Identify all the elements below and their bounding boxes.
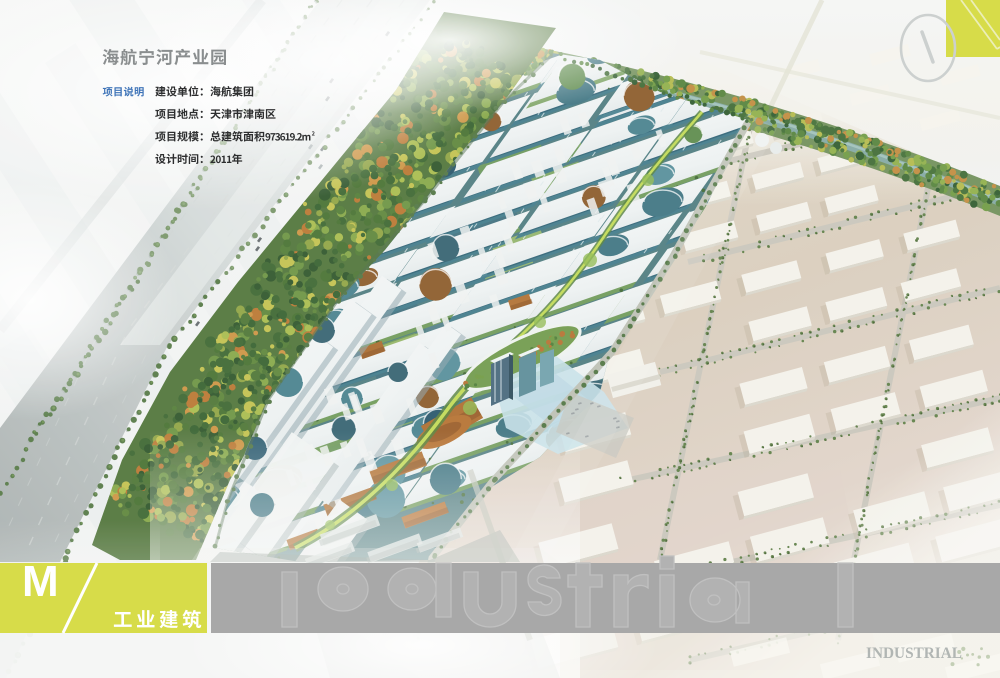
svg-text:INDUSTRIAL: INDUSTRIAL bbox=[866, 645, 962, 662]
svg-text:M: M bbox=[22, 557, 59, 606]
